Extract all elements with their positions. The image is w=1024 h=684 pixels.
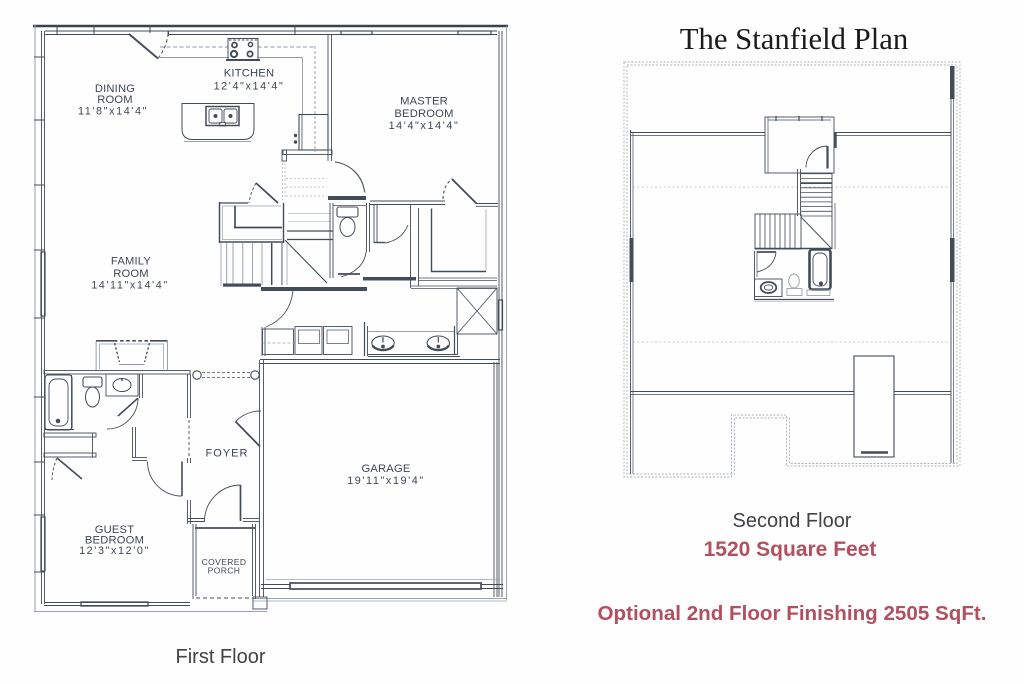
- svg-text:PORCH: PORCH: [208, 566, 241, 576]
- svg-text:14'11"x14'4": 14'11"x14'4": [91, 280, 169, 292]
- svg-text:ROOM: ROOM: [113, 268, 149, 280]
- svg-text:The Stanfield Plan: The Stanfield Plan: [680, 22, 908, 56]
- svg-text:First Floor: First Floor: [176, 646, 266, 668]
- svg-text:19'11"x19'4": 19'11"x19'4": [347, 475, 425, 487]
- svg-text:12'4"x14'4": 12'4"x14'4": [214, 81, 285, 93]
- svg-text:14'4"x14'4": 14'4"x14'4": [389, 120, 460, 132]
- svg-text:FAMILY: FAMILY: [111, 256, 151, 268]
- svg-text:12'3"x12'0": 12'3"x12'0": [79, 545, 150, 557]
- svg-text:GARAGE: GARAGE: [361, 463, 410, 475]
- svg-text:11'8"x14'4": 11'8"x14'4": [78, 106, 148, 118]
- svg-text:Optional 2nd Floor Finishing 2: Optional 2nd Floor Finishing 2505 SqFt.: [597, 602, 986, 625]
- svg-text:MASTER: MASTER: [400, 96, 448, 108]
- svg-text:FOYER: FOYER: [206, 448, 249, 460]
- svg-text:1520 Square Feet: 1520 Square Feet: [704, 538, 877, 561]
- svg-text:Second Floor: Second Floor: [733, 510, 852, 532]
- svg-text:KITCHEN: KITCHEN: [224, 68, 275, 80]
- svg-text:BEDROOM: BEDROOM: [394, 108, 453, 120]
- svg-text:ROOM: ROOM: [97, 94, 133, 106]
